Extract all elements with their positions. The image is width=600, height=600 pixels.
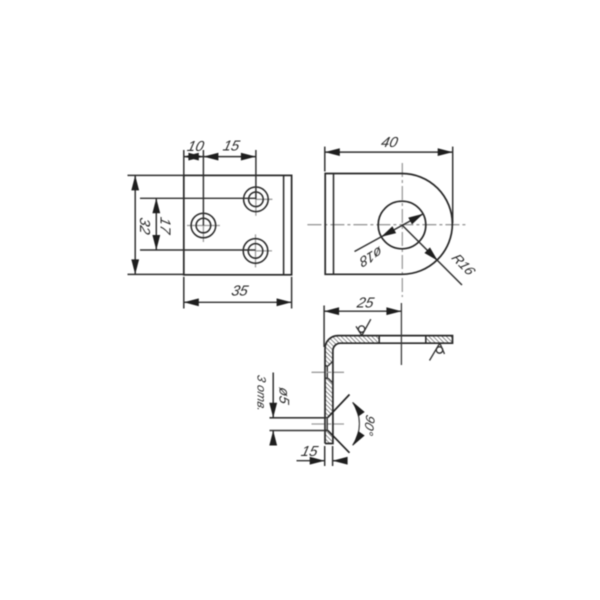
svg-text:15: 15: [300, 444, 321, 460]
svg-text:35: 35: [230, 284, 251, 300]
svg-text:90°: 90°: [361, 413, 378, 438]
svg-text:25: 25: [355, 296, 377, 312]
svg-text:32: 32: [136, 216, 152, 236]
svg-text:R16: R16: [448, 252, 479, 278]
svg-text:17: 17: [157, 216, 173, 237]
svg-text:40: 40: [380, 135, 401, 151]
svg-text:3 отв.: 3 отв.: [255, 374, 269, 413]
svg-text:ø5: ø5: [276, 386, 292, 406]
svg-text:ø18: ø18: [358, 242, 384, 270]
svg-text:15: 15: [221, 139, 242, 155]
